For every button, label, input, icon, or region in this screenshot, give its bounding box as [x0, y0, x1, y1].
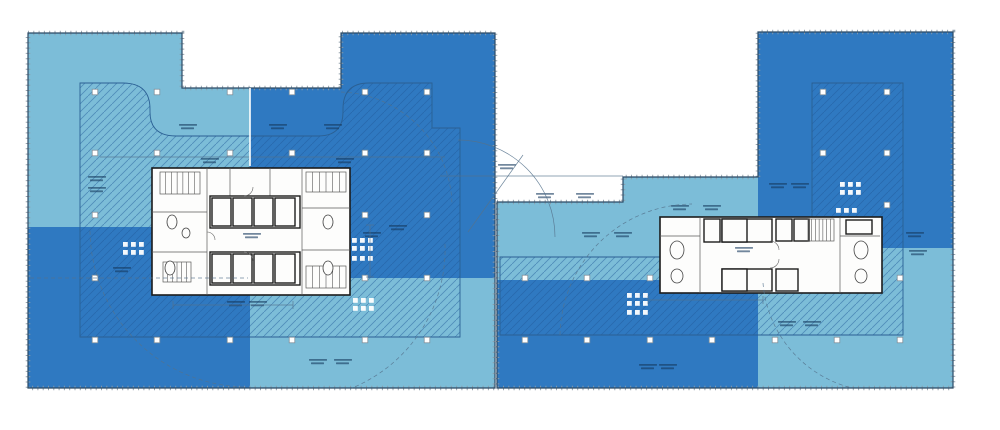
column: [522, 275, 528, 281]
column: [884, 89, 890, 95]
fixture-oval: [854, 241, 868, 259]
elevator-cell: [846, 220, 872, 234]
column: [154, 150, 160, 156]
column: [647, 337, 653, 343]
column: [92, 89, 98, 95]
fixture-cluster: [836, 208, 857, 213]
building-west-tower: [28, 33, 516, 388]
elevator-cell: [794, 219, 809, 241]
elevator-cell: [776, 269, 798, 291]
fixture-oval: [165, 261, 175, 275]
column: [709, 337, 715, 343]
column: [154, 89, 160, 95]
fixture-oval: [671, 269, 683, 283]
elevator-cell: [722, 269, 747, 291]
column: [820, 150, 826, 156]
column: [424, 150, 430, 156]
elevator-cell: [233, 198, 252, 226]
core-west-tower: [152, 168, 350, 295]
column: [522, 337, 528, 343]
column: [362, 150, 368, 156]
fixture-cluster: [627, 310, 648, 315]
column: [289, 150, 295, 156]
fixture-oval: [323, 215, 333, 229]
floor-plan-canvas: [0, 0, 1000, 430]
plan-sheet: [0, 0, 1000, 430]
column: [584, 275, 590, 281]
column: [362, 89, 368, 95]
fixture-oval: [855, 269, 867, 283]
fixture-oval: [670, 241, 684, 259]
column: [584, 337, 590, 343]
column: [289, 337, 295, 343]
column: [820, 89, 826, 95]
elevator-cell: [233, 254, 252, 283]
column: [884, 150, 890, 156]
column: [424, 212, 430, 218]
column: [424, 275, 430, 281]
micro-label: [576, 193, 594, 198]
fixture-oval: [323, 261, 333, 275]
fixture-oval: [182, 228, 190, 238]
elevator-cell: [212, 254, 231, 283]
column: [897, 337, 903, 343]
fixture-oval: [167, 215, 177, 229]
elevator-cell: [254, 198, 273, 226]
column: [92, 212, 98, 218]
column: [227, 89, 233, 95]
elevator-cell: [275, 254, 295, 283]
column: [884, 202, 890, 208]
column: [227, 337, 233, 343]
elevator-cell: [275, 198, 295, 226]
column: [647, 275, 653, 281]
elevator-cell: [212, 198, 231, 226]
column: [424, 337, 430, 343]
elevator-cell: [704, 219, 720, 242]
building-east-tower: [497, 32, 953, 388]
column: [92, 150, 98, 156]
column: [834, 337, 840, 343]
elevator-cell: [254, 254, 273, 283]
column: [289, 89, 295, 95]
column: [227, 150, 233, 156]
elevator-cell: [776, 219, 792, 241]
column: [362, 337, 368, 343]
core-east-tower: [660, 217, 882, 293]
column: [772, 337, 778, 343]
column: [424, 89, 430, 95]
elevator-cell: [722, 219, 747, 242]
column: [897, 275, 903, 281]
column: [362, 275, 368, 281]
column: [362, 212, 368, 218]
column: [154, 337, 160, 343]
column: [92, 337, 98, 343]
